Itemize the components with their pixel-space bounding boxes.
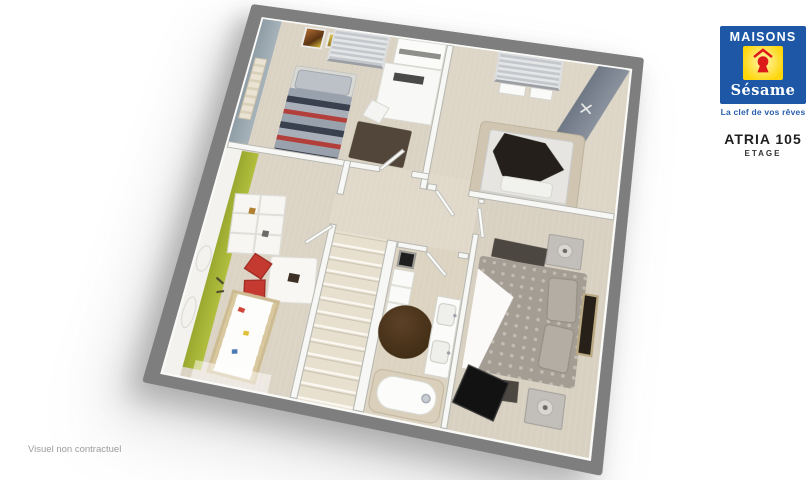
maisons-sesame-logo: MAISONS Sésame [720, 26, 806, 104]
table-toy [287, 273, 300, 283]
logo-word-sesame: Sésame [731, 82, 796, 99]
floor-label: ETAGE [713, 149, 811, 158]
cube-shelf-unit [227, 193, 287, 256]
brand-tagline: La clef de vos rêves [713, 107, 811, 117]
page: MAISONS Sésame La clef de vos rêves ATRI… [0, 0, 811, 480]
wall [478, 198, 485, 204]
logo-yellow-square [743, 46, 783, 80]
bed-pillow [546, 277, 578, 324]
dandelion-decal [580, 103, 592, 114]
disclaimer-text: Visuel non contractuel [28, 444, 121, 455]
keyhole-icon [748, 47, 778, 80]
brand-panel: MAISONS Sésame La clef de vos rêves ATRI… [713, 26, 811, 158]
model-name: ATRIA 105 [713, 131, 811, 147]
kids-bedding-dot [232, 349, 238, 354]
logo-word-maisons: MAISONS [730, 30, 797, 44]
floorplan-3d [142, 4, 644, 476]
kids-bedding-dot [243, 331, 249, 336]
laundry-chute [396, 250, 416, 269]
